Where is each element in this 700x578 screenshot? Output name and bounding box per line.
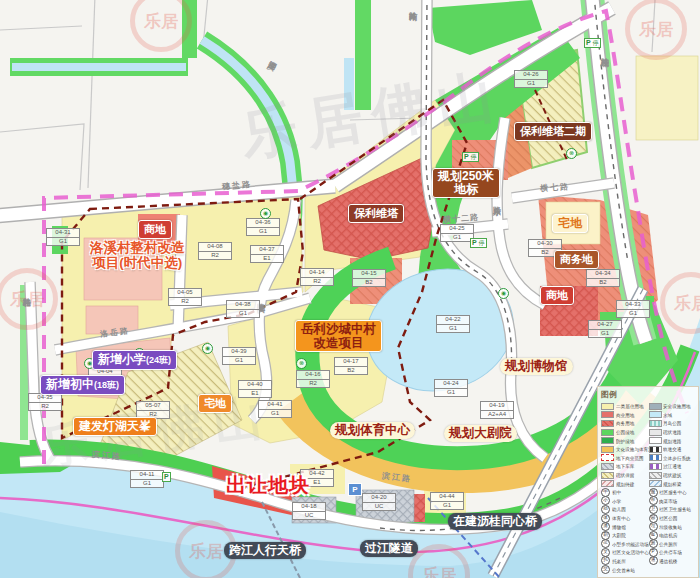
parcel-code: 04-41: [259, 401, 291, 410]
parcel-code: 04-20: [363, 494, 395, 503]
parcel-code: 04-30: [529, 240, 561, 249]
parcel-label: 04-08R2: [198, 242, 232, 260]
parcel-label: 04-11G1: [130, 470, 164, 488]
parcel-label: 04-36G1: [246, 218, 280, 236]
parcel-label: 04-15B2: [352, 269, 386, 287]
legend-swatch: [601, 420, 614, 427]
parking-icon-blue: P: [348, 483, 362, 496]
legend-label: 规划桥梁: [663, 481, 681, 487]
label-line: 洛溪村整村改造: [90, 240, 185, 255]
legend-label: 幼儿园: [612, 507, 626, 513]
parcel-zone: G1: [435, 389, 467, 397]
poi-icon: ◉: [202, 343, 213, 354]
parcel-label: 04-16R2: [296, 370, 330, 388]
parcel-code: 04-27: [589, 321, 621, 330]
parcel-zone: G1: [515, 80, 547, 88]
parking-icon: P: [162, 472, 171, 482]
parcel-code: 04-40: [239, 381, 271, 390]
legend-label: 水域: [663, 412, 672, 418]
legend-swatch: [601, 446, 614, 453]
label-tongxin-bridge: 在建沥桂同心桥: [448, 513, 542, 530]
label-line: 项目(时代中选): [90, 255, 185, 270]
parcel-zone: E1: [239, 390, 271, 398]
legend-swatch: [649, 472, 662, 479]
label-commercial-se: 商地: [540, 286, 574, 305]
parcel-zone: R2: [301, 278, 333, 286]
parcel-code: 05-07: [137, 402, 169, 411]
label-footbridge: 跨江人行天桥: [224, 542, 306, 559]
legend-label: 电信机房: [659, 532, 677, 538]
parcel-code: 04-31: [47, 229, 79, 238]
label-luoxi-project: 洛溪村整村改造 项目(时代中选): [90, 240, 185, 270]
parcel-code: 04-15: [353, 270, 385, 279]
parcel-code: 04-22: [437, 316, 469, 325]
label-residential-east: 宅地: [552, 214, 588, 233]
parcel-code: 04-05: [169, 289, 201, 298]
legend-label: 商务用地: [616, 421, 634, 427]
label-yuelisha-project: 岳利沙城中村 改造项目: [295, 320, 382, 352]
parcel-label: 04-05R2: [168, 288, 202, 306]
legend-label: 过江通道: [663, 464, 681, 470]
legend-swatch: [601, 472, 614, 479]
parcel-zone: A2+A4: [481, 411, 513, 419]
parcel-zone: G1: [617, 310, 649, 318]
residential-parcel: [636, 56, 698, 140]
parcel-label: 04-20UC: [362, 493, 396, 511]
parcel-zone: G1: [437, 325, 469, 333]
parcel-code: 04-34: [587, 270, 619, 279]
legend-swatch: [601, 437, 614, 444]
legend-swatch: [649, 420, 662, 427]
parcel-zone: UC: [293, 512, 325, 520]
parcel-label: 04-40E1: [238, 380, 272, 398]
parcel-zone: R2: [199, 252, 231, 260]
parcel-code: 04-14: [301, 269, 333, 278]
parcel-label: 04-35R2: [28, 393, 62, 411]
legend-label: 肉菜市场: [659, 498, 677, 504]
legend-label: 地下商业范围: [616, 455, 644, 461]
parcel-zone: B2: [335, 367, 367, 375]
parcel-code: 04-44: [431, 493, 463, 502]
legend-title: 图例: [601, 389, 696, 400]
parcel-zone: R2: [169, 298, 201, 306]
parcel-code: 04-37: [251, 246, 283, 255]
parcel-code: 04-08: [199, 243, 231, 252]
legend-swatch: [601, 480, 614, 487]
label-grand-theater: 规划大剧院: [444, 425, 517, 442]
parcel-code: 04-33: [617, 301, 649, 310]
parcel-zone: G1: [131, 480, 163, 488]
parcel-label: 04-26G1: [514, 70, 548, 88]
legend-label: 规划道路: [663, 438, 681, 444]
legend-label: 轨道交通: [663, 447, 681, 453]
legend-label: 安全设施用地: [663, 404, 691, 410]
label-sell-parcel: 出让地块: [226, 472, 310, 499]
label-jianfa-project: 建发灯湖天峯: [73, 417, 157, 436]
parcel-code: 04-35: [29, 394, 61, 403]
parcel-label: 04-14R2: [300, 268, 334, 286]
legend-label: 小型多功能运动场地: [612, 541, 649, 547]
parking-icon: P 停: [462, 152, 479, 162]
parcel-zone: G1: [227, 310, 259, 318]
legend-swatch: [649, 429, 662, 436]
label-line: 改造项目: [301, 336, 376, 350]
legend-label: 垃圾收集站: [659, 524, 682, 530]
parcel-code: 04-25: [441, 225, 473, 234]
road-label-hengqi: 横七路: [540, 181, 571, 194]
parcel-label: 04-19A2+A4: [480, 401, 514, 419]
parcel-code: 04-26: [515, 71, 547, 80]
parcel-label: 04-34B2: [586, 269, 620, 287]
parcel-code: 04-36: [247, 219, 279, 228]
legend-icon: 通: [649, 556, 658, 565]
parcel-zone: G1: [441, 234, 473, 242]
parcel-code: 04-18: [293, 503, 325, 512]
legend-swatch: [601, 463, 614, 470]
parcel-zone: G1: [247, 228, 279, 236]
parcel-label: 04-27G1: [588, 320, 622, 338]
label-sports-center: 规划体育中心: [330, 422, 415, 439]
parcel-code: 04-11: [131, 471, 163, 480]
legend-label: 公交首末站: [612, 567, 635, 573]
parcel-zone: G1: [259, 410, 291, 418]
legend-swatch: [649, 480, 662, 487]
label-commercial-nw: 商地: [138, 220, 172, 239]
legend-label: 小学: [612, 498, 621, 504]
legend-label: 社区服务中心: [659, 489, 687, 495]
parcel-label: 04-31G1: [46, 228, 80, 246]
label-residential-west: 宅地: [198, 394, 232, 413]
parcel-zone: G1: [47, 238, 79, 246]
parcel-zone: G1: [431, 502, 463, 510]
label-poly-vita2: 保利维塔二期: [514, 122, 592, 141]
label-business-land: 商务地: [554, 250, 599, 269]
label-new-primary-school: 新增小学(24班): [92, 350, 177, 370]
poi-icon: ◉: [260, 208, 271, 219]
label-line: 地标: [438, 183, 494, 196]
legend-label: 公园绿地: [616, 429, 634, 435]
legend-label: 博物馆: [612, 524, 626, 530]
legend-swatch: [649, 463, 662, 470]
legend-label: 现状道路: [663, 429, 681, 435]
poi-icon: ◉: [498, 288, 509, 299]
legend-swatch: [601, 429, 614, 436]
parcel-zone: G1: [223, 357, 255, 365]
canal-water: [12, 63, 186, 71]
parcel-code: 04-19: [481, 402, 513, 411]
legend-label: 月岛公园: [663, 421, 681, 427]
parcel-label: 04-33G1: [616, 300, 650, 318]
poi-icon: ⊗: [566, 148, 577, 159]
legend-panel: 图例 二类居住用地安全设施用地 商业用地水域 商务用地月岛公园 公园绿地现状道路…: [597, 386, 699, 578]
legend-label: 初中: [612, 489, 621, 495]
legend-label: 社区公园: [659, 515, 677, 521]
legend-label: 现状建筑: [663, 472, 681, 478]
legend-label: 商业用地: [616, 412, 634, 418]
label-tunnel: 过江隧道: [360, 540, 418, 557]
parcel-code: 04-39: [223, 348, 255, 357]
label-new-middle-school: 新增初中(18班): [40, 375, 125, 395]
legend-swatch: [649, 446, 662, 453]
legend-label: 公共厕所: [659, 541, 677, 547]
parcel-zone: UC: [363, 503, 395, 511]
legend-swatch: [649, 437, 662, 444]
legend-label: 公共停车场: [659, 550, 682, 556]
parcel-code: 04-24: [435, 380, 467, 389]
parking-icon: P 停: [470, 238, 487, 248]
parcel-label: 04-37E1: [250, 245, 284, 263]
watermark-logo: 乐居: [625, 0, 687, 60]
poi-icon: ⊗: [296, 358, 307, 369]
parcel-label: 04-22G1: [436, 315, 470, 333]
parcel-code: 04-17: [335, 358, 367, 367]
legend-label: 通信机楼: [659, 558, 677, 564]
parcel-label: 04-24G1: [434, 379, 468, 397]
legend-label: 立体步行系统: [663, 455, 691, 461]
parcel-zone: E1: [251, 255, 283, 263]
legend-label: 大剧院: [612, 532, 626, 538]
legend-label: 规划待建: [616, 481, 634, 487]
legend-icon: 交: [601, 565, 610, 574]
legend-swatch: [601, 403, 614, 410]
label-landmark: 规划250米 地标: [432, 168, 500, 198]
legend-swatch: [601, 411, 614, 418]
parcel-label: 04-41G1: [258, 400, 292, 418]
planning-map: 乐居佛山 乐居佛山 乐居 乐居 乐居 乐居 乐居 乐居 穗盐路 岭南路 桂澜路 …: [0, 0, 700, 578]
legend-label: 地下车库: [616, 464, 634, 470]
parcel-zone: R2: [297, 380, 329, 388]
parcel-label: 04-18UC: [292, 502, 326, 520]
legend-swatch: [649, 454, 662, 461]
legend-swatch: [649, 403, 662, 410]
legend-label: 防护绿地: [616, 438, 634, 444]
legend-label: 现状保留: [616, 472, 634, 478]
legend-label: 社区卫生服务站: [659, 507, 691, 513]
parcel-label: 04-39G1: [222, 347, 256, 365]
parcel-code: 04-16: [297, 371, 329, 380]
parcel-label: 04-44G1: [430, 492, 464, 510]
legend-label: 托老所: [612, 558, 626, 564]
legend-label: 二类居住用地: [616, 404, 644, 410]
label-poly-vita: 保利维塔: [348, 204, 404, 223]
parcel-label: 04-38G1: [226, 300, 260, 318]
legend-label: 文化设施与体育混合用地: [616, 447, 649, 453]
parcel-zone: R2: [29, 403, 61, 411]
legend-swatch: [649, 411, 662, 418]
parcel-zone: B2: [587, 279, 619, 287]
parcel-code: 04-38: [227, 301, 259, 310]
legend-label: 社区文化活动中心: [612, 550, 649, 556]
legend-swatch: [601, 454, 614, 461]
label-museum: 规划博物馆: [500, 358, 573, 375]
parcel-zone: G1: [589, 330, 621, 338]
legend-label: 体育中心: [612, 515, 630, 521]
parking-icon: P 停: [584, 38, 601, 48]
parcel-zone: B2: [353, 279, 385, 287]
parcel-label: 04-17B2: [334, 357, 368, 375]
parcel-label: 04-25G1: [440, 224, 474, 242]
label-line: 岳利沙城中村: [301, 322, 376, 336]
